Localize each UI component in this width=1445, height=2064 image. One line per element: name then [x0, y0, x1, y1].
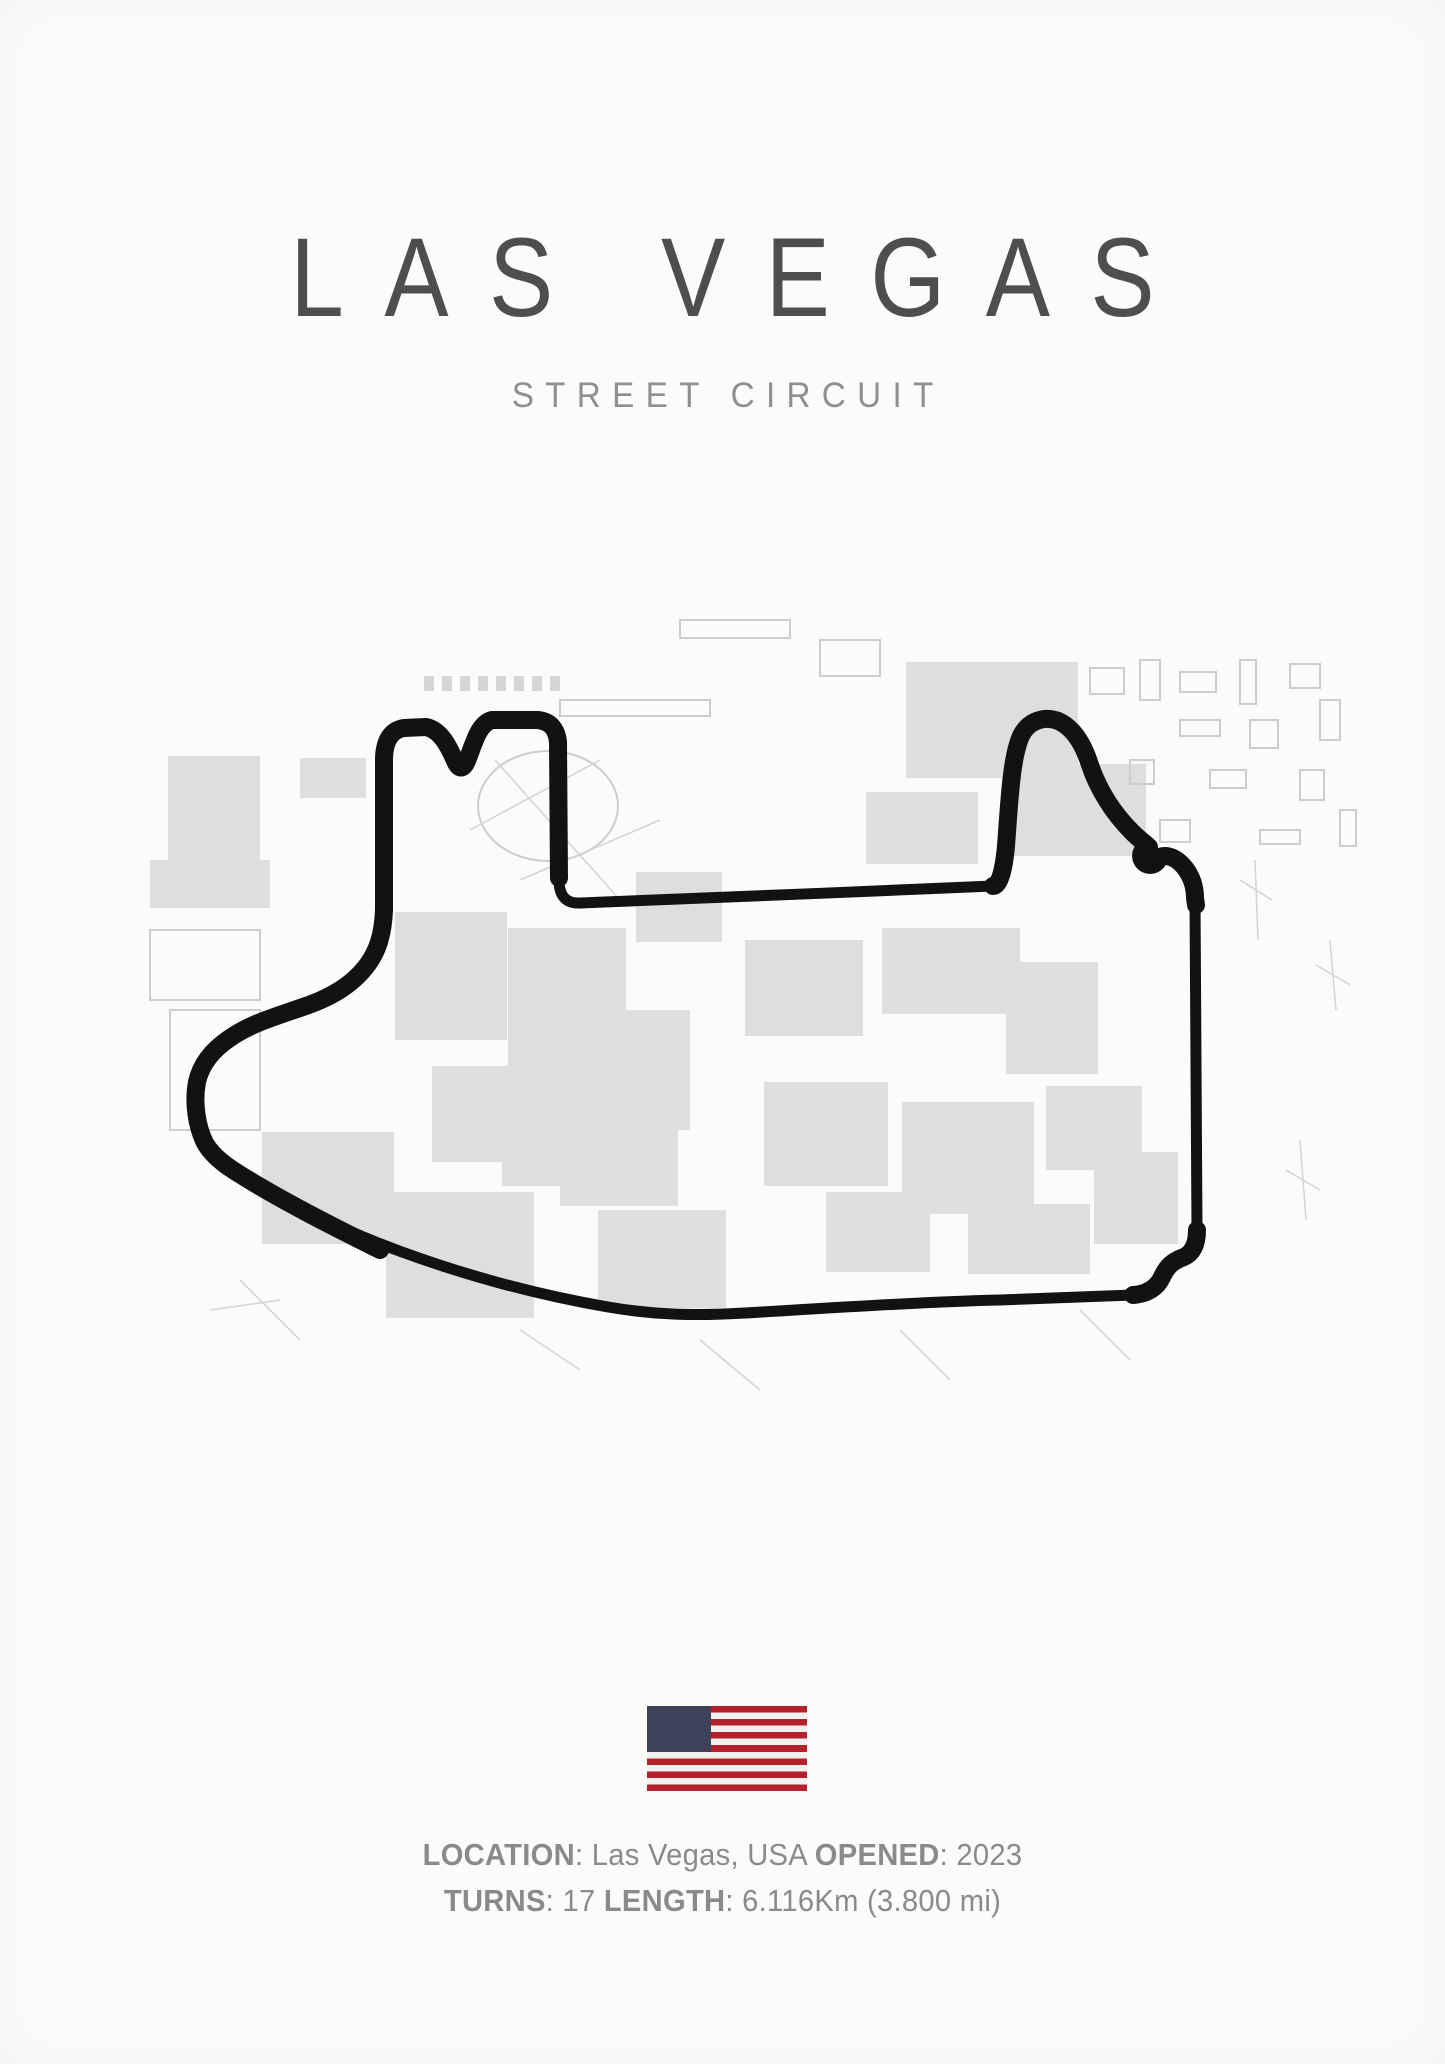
length-label: LENGTH — [604, 1883, 726, 1918]
length-value: : 6.116Km (3.800 mi) — [725, 1883, 1001, 1918]
info-line-2: TURNS: 17 LENGTH: 6.116Km (3.800 mi) — [43, 1878, 1401, 1924]
circuit-poster: LAS VEGAS STREET CIRCUIT — [0, 0, 1445, 2064]
circuit-info: LOCATION: Las Vegas, USA OPENED: 2023 TU… — [43, 1832, 1401, 1924]
location-label: LOCATION — [423, 1837, 575, 1872]
location-value: : Las Vegas, USA — [575, 1837, 815, 1872]
info-line-1: LOCATION: Las Vegas, USA OPENED: 2023 — [43, 1832, 1401, 1878]
opened-label: OPENED — [815, 1837, 940, 1872]
usa-flag — [647, 1706, 807, 1791]
flag-canton — [647, 1706, 711, 1752]
turns-value: : 17 — [546, 1883, 604, 1918]
opened-value: : 2023 — [940, 1837, 1023, 1872]
turns-label: TURNS — [444, 1883, 546, 1918]
